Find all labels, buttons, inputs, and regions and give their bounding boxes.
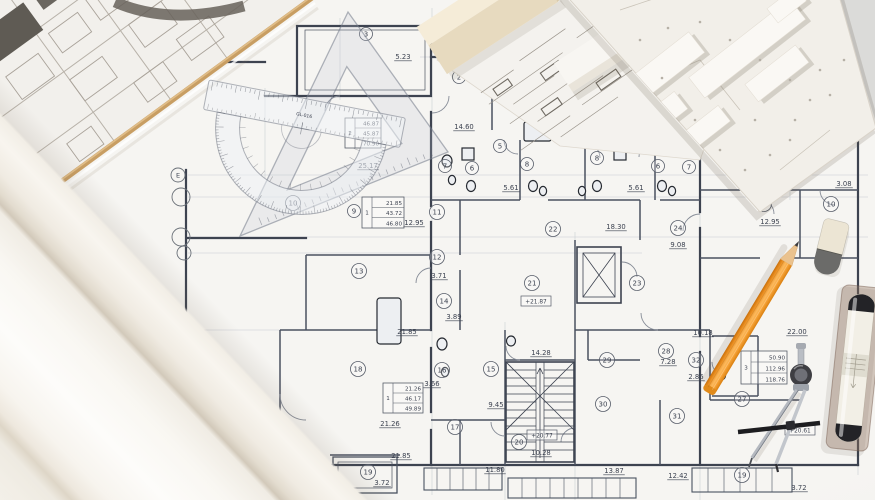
lead-case (820, 284, 875, 458)
compass (738, 343, 820, 472)
degree-tick-inner (354, 149, 360, 151)
photo-architectural-blueprints: E324576885671091122242510121314212318161… (0, 0, 875, 500)
drafting-tools-layer: GL-016 (0, 0, 875, 500)
compass-knurl (796, 343, 806, 349)
compass-stem (798, 347, 804, 365)
compass-clamp (786, 420, 796, 430)
degree-tick-inner (240, 136, 246, 139)
degree-tick-inner (261, 170, 265, 176)
compass-needle-point (749, 458, 752, 467)
degree-tick-inner (243, 146, 249, 150)
degree-tick-inner (247, 155, 252, 160)
eraser (811, 218, 852, 279)
compass-lead (776, 464, 778, 472)
degree-tick-inner (240, 126, 246, 128)
pencil (697, 234, 805, 396)
pencil-shadow (700, 243, 788, 384)
degree-tick-inner (349, 157, 355, 160)
degree-tick-inner (253, 163, 258, 168)
